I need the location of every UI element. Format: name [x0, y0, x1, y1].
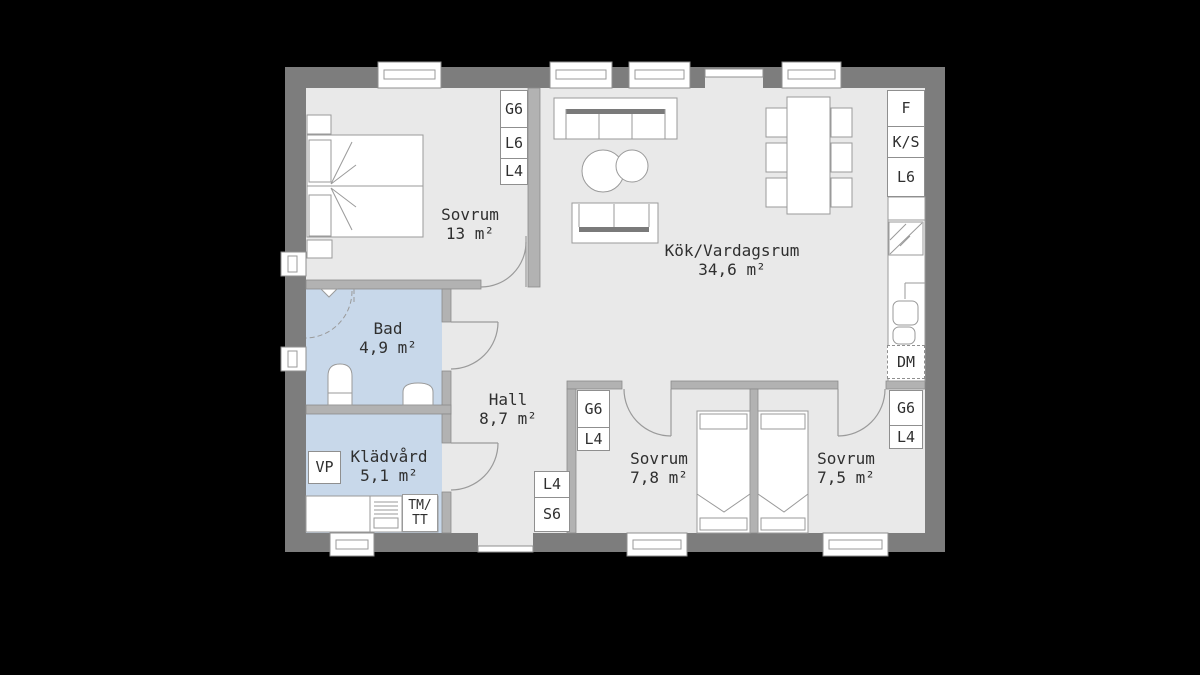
dining-set: [766, 97, 852, 214]
wall-bedroom1-east: [528, 88, 540, 287]
window-west-2: [281, 347, 306, 371]
toilet: [328, 364, 352, 405]
wardrobe-l4: L4: [534, 471, 570, 498]
chair: [831, 143, 852, 172]
chair: [766, 143, 787, 172]
room-area: 7,5 m²: [776, 469, 916, 488]
room-area: 34,6 m²: [642, 261, 822, 280]
cleaning-cabinet-s6: S6: [534, 497, 570, 532]
room-area: 8,7 m²: [448, 410, 568, 429]
wall-east: [925, 88, 945, 533]
wall-living-south-c: [886, 381, 925, 389]
entrance-door: [478, 533, 533, 552]
floor-plan-canvas: G6 L6 L4 F K/S L6 DM G6 L4 L4 S6 G6 L4 V…: [0, 0, 1200, 675]
sofa-small: [572, 203, 658, 243]
wardrobe-l4: L4: [577, 427, 610, 451]
chair: [831, 178, 852, 207]
window-south-3: [823, 533, 888, 556]
window-south-1: [330, 533, 374, 556]
freezer-unit: F: [887, 90, 925, 127]
room-label-bathroom: Bad 4,9 m²: [338, 320, 438, 357]
wardrobe-g6: G6: [577, 390, 610, 428]
room-label-bedroom-3: Sovrum 7,5 m²: [776, 450, 916, 487]
room-label-hall: Hall 8,7 m²: [448, 391, 568, 428]
wall-bath-laundry-divider: [306, 405, 451, 414]
wall-west: [285, 88, 306, 533]
room-area: 4,9 m²: [338, 339, 438, 358]
window-south-2: [627, 533, 687, 556]
washbasin: [403, 383, 433, 405]
wall-bath-east-upper: [442, 289, 451, 322]
room-label-bedroom-1: Sovrum 13 m²: [400, 206, 540, 243]
sofa-large: [554, 98, 677, 139]
window-north-1: [378, 62, 441, 88]
dining-table: [787, 97, 830, 214]
chair: [831, 108, 852, 137]
room-name: Sovrum: [400, 206, 540, 225]
nightstand-bottom: [307, 240, 332, 258]
wardrobe-g6: G6: [889, 390, 923, 426]
wall-bedroom-divider: [750, 389, 758, 533]
fridge-cooler-unit: K/S: [887, 126, 925, 158]
wardrobe-l6: L6: [500, 127, 528, 159]
floor-plan-drawing: [0, 0, 1200, 675]
chair: [766, 178, 787, 207]
chair: [766, 108, 787, 137]
wall-living-south-b: [671, 381, 838, 389]
room-label-laundry: Klädvård 5,1 m²: [319, 448, 459, 485]
wardrobe-l4: L4: [889, 425, 923, 449]
wardrobe-l4: L4: [500, 158, 528, 185]
room-name: Sovrum: [589, 450, 729, 469]
pillow-2: [309, 195, 331, 236]
room-area: 7,8 m²: [589, 469, 729, 488]
wall-bedroom1-south: [306, 280, 481, 289]
window-north-3: [629, 62, 690, 88]
nightstand-top: [307, 115, 331, 134]
pillow-1: [309, 140, 331, 182]
terrace-glazing: [705, 69, 763, 88]
room-label-kitchen-living: Kök/Vardagsrum 34,6 m²: [642, 242, 822, 279]
room-label-bedroom-2: Sovrum 7,8 m²: [589, 450, 729, 487]
wardrobe-g6: G6: [500, 90, 528, 128]
room-name: Klädvård: [319, 448, 459, 467]
window-north-4: [782, 62, 841, 88]
room-name: Kök/Vardagsrum: [642, 242, 822, 261]
washer-dryer-label-line2: TT: [412, 513, 428, 528]
washer-dryer-label-line1: TM/: [408, 498, 431, 513]
washer-dryer-unit: TM/ TT: [402, 494, 438, 532]
room-name: Hall: [448, 391, 568, 410]
wall-laundry-east-lower: [442, 492, 451, 533]
pillow: [700, 414, 747, 429]
room-area: 5,1 m²: [319, 467, 459, 486]
wall-living-south-a: [567, 381, 622, 389]
window-west-1: [281, 252, 306, 276]
room-name: Sovrum: [776, 450, 916, 469]
room-name: Bad: [338, 320, 438, 339]
room-area: 13 m²: [400, 225, 540, 244]
dishwasher-unit: DM: [887, 345, 925, 379]
window-north-2: [550, 62, 612, 88]
kitchen-cabinet-l6: L6: [887, 157, 925, 197]
pillow: [761, 414, 805, 429]
